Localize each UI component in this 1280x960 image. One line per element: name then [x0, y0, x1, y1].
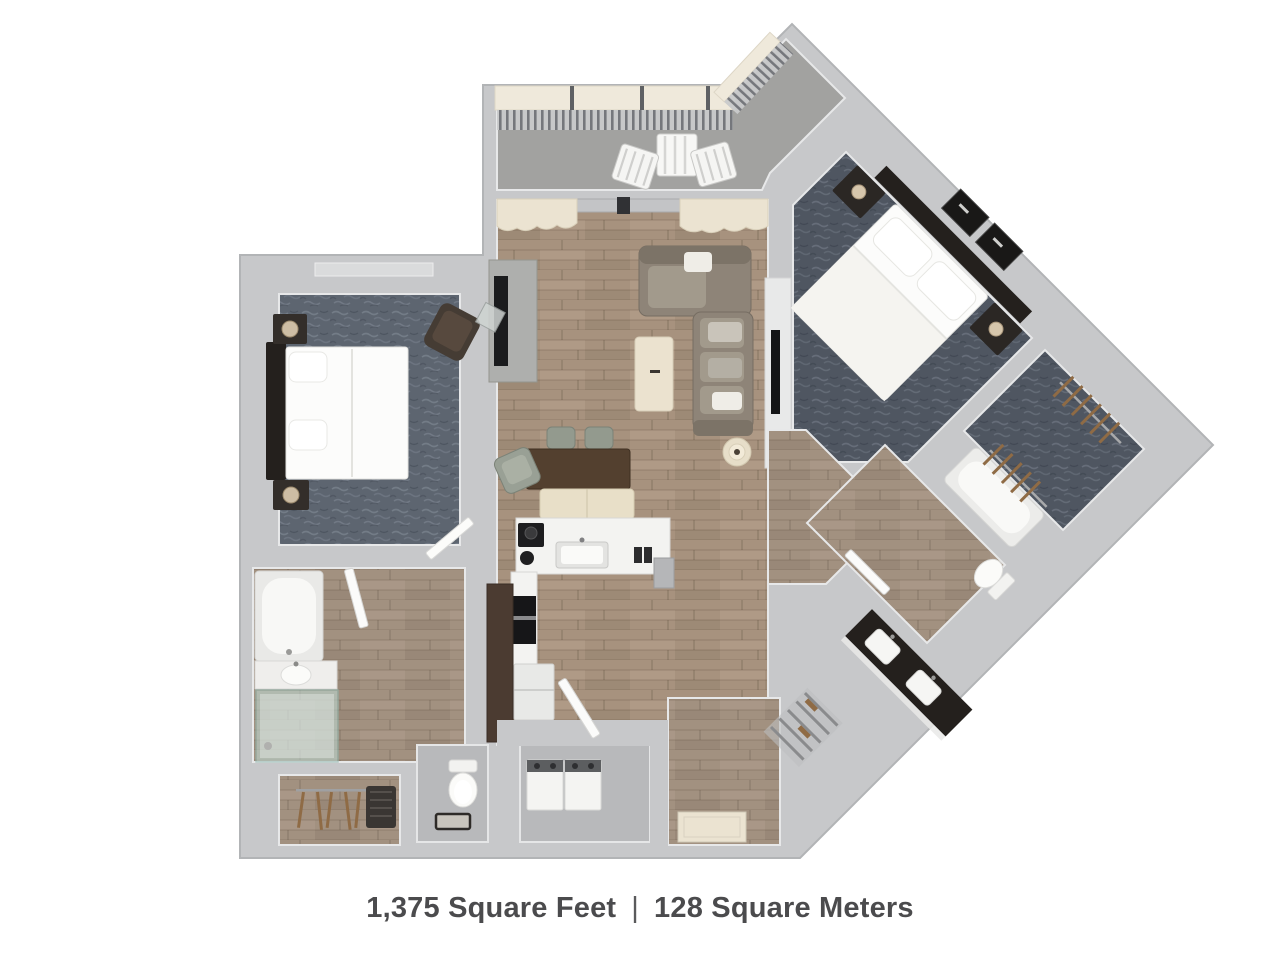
oven-handle — [512, 616, 536, 620]
balcony-pergola — [495, 86, 735, 110]
canister — [644, 547, 652, 563]
dining-chair — [585, 427, 613, 449]
kettle — [520, 551, 534, 565]
bed1-pillow — [289, 352, 327, 382]
pergola-post — [570, 86, 574, 110]
dining-table — [526, 449, 630, 489]
vanity-faucet — [294, 662, 299, 667]
bed1-headboard — [266, 342, 286, 480]
counter-pillar — [654, 558, 674, 588]
curtain-right — [680, 199, 768, 233]
shower-head — [264, 742, 272, 750]
pantry-cabinet — [487, 584, 513, 742]
faucet — [580, 538, 585, 543]
sink-basin — [561, 546, 603, 564]
wall-laundry-top — [497, 720, 653, 746]
floor-plan-3d-rendering — [0, 0, 1280, 960]
side-table-lamp — [723, 438, 751, 466]
dryer — [565, 760, 601, 810]
laundry-closet — [520, 745, 650, 842]
canister — [634, 547, 642, 563]
closet-1 — [279, 775, 400, 845]
vanity-sink — [281, 665, 311, 685]
refrigerator — [514, 664, 554, 720]
caption-separator: | — [631, 892, 639, 924]
pot — [525, 527, 537, 539]
dining-chair — [547, 427, 575, 449]
tub-faucet — [286, 649, 292, 655]
pergola-post — [640, 86, 644, 110]
area-sqft: 1,375 Square Feet — [366, 892, 616, 924]
washer — [527, 760, 563, 810]
bedroom1-window — [315, 263, 433, 276]
bathtub-basin — [262, 578, 316, 654]
lamp — [282, 321, 298, 337]
bathroom-1 — [253, 568, 465, 762]
entry-hall — [668, 698, 780, 845]
curtain-left — [497, 199, 577, 231]
toilet-tank — [449, 760, 477, 772]
bed1-pillow — [289, 420, 327, 450]
bath-mat — [436, 814, 470, 829]
coffee-table-handle — [650, 370, 660, 373]
wc-room — [417, 745, 488, 842]
floor-plan-page: 1,375 Square Feet|128 Square Meters — [0, 0, 1280, 960]
balcony-railing — [497, 110, 733, 130]
toilet-seat — [454, 780, 472, 804]
area-sqm: 128 Square Meters — [654, 892, 914, 924]
wall-laundry-entry — [650, 720, 668, 846]
coffee-table — [635, 337, 673, 411]
pergola-post — [706, 86, 710, 110]
lamp — [283, 487, 299, 503]
bedroom2-tv — [771, 330, 780, 414]
area-caption: 1,375 Square Feet|128 Square Meters — [0, 892, 1280, 925]
living-dining-kitchen — [487, 197, 768, 745]
sliding-door-frame — [617, 197, 630, 214]
